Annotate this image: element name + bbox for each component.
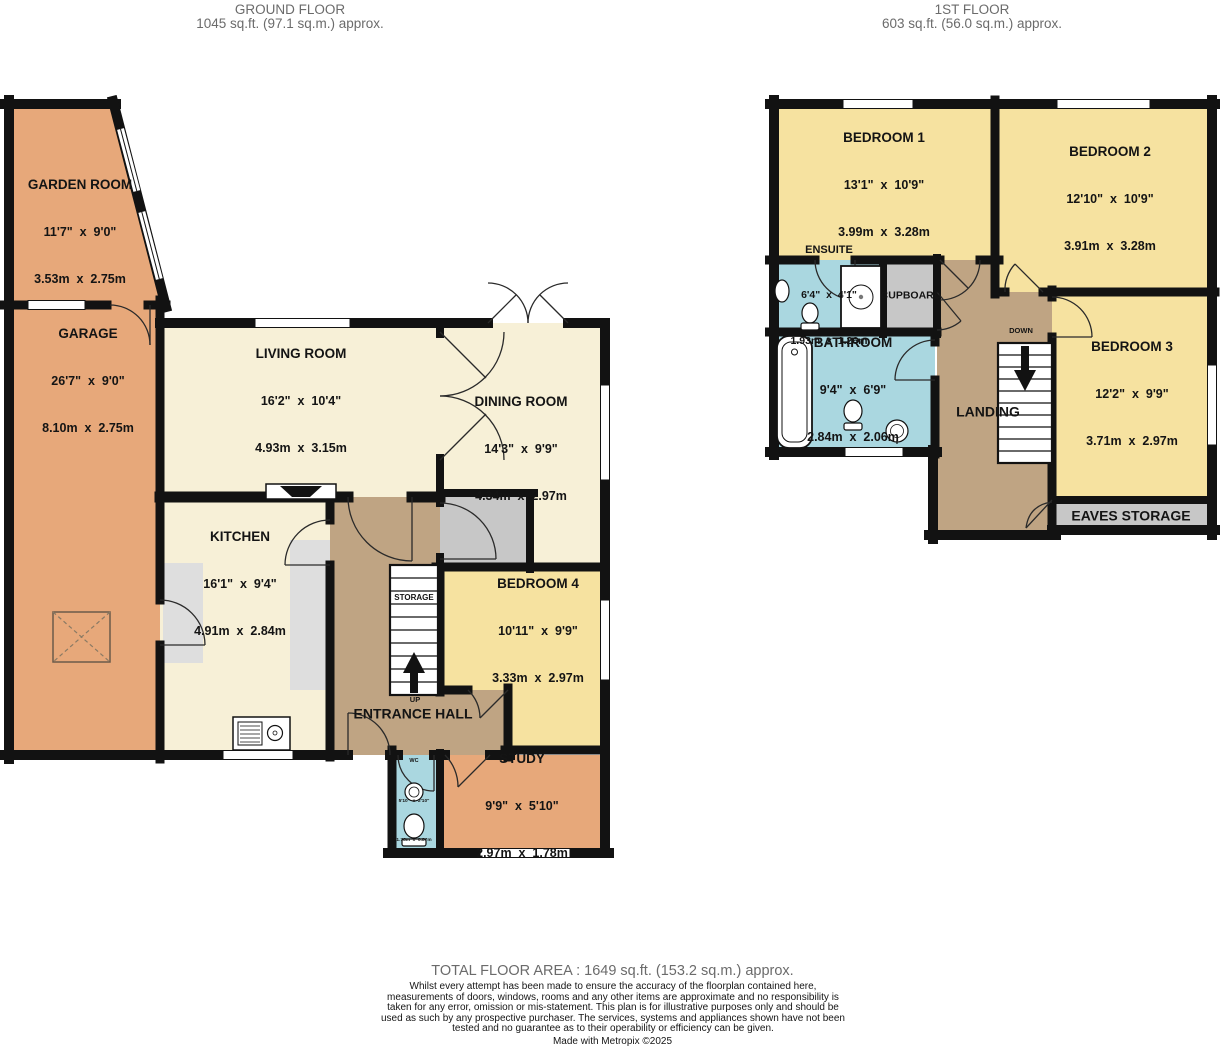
stairs-arrow-shaft: [1021, 346, 1029, 372]
door-leaf: [488, 295, 516, 323]
room-label-entrance-hall: ENTRANCE HALL: [354, 707, 473, 722]
ground-floor-title: GROUND FLOOR: [196, 3, 384, 17]
floorplan-canvas: GROUND FLOOR 1045 sq.ft. (97.1 sq.m.) ap…: [0, 0, 1225, 1048]
stairs-up-label: UP: [410, 696, 420, 704]
first-floor-area: 603 sq.ft. (56.0 sq.m.) approx.: [882, 17, 1062, 31]
disclaimer-text: Whilst every attempt has been made to en…: [378, 982, 848, 1035]
room-label-study: STUDY 9'9" x 5'10" 2.97m x 1.78m: [476, 718, 568, 894]
ground-floor-header: GROUND FLOOR 1045 sq.ft. (97.1 sq.m.) ap…: [196, 3, 384, 31]
stairs-down-label: DOWN: [1009, 327, 1033, 335]
window: [601, 385, 610, 480]
window: [1208, 365, 1217, 445]
stairs-up: [390, 565, 438, 695]
room-label-garage: GARAGE 26'7" x 9'0" 8.10m x 2.75m: [42, 293, 134, 469]
door-leaf: [540, 295, 568, 323]
stairs-arrow-shaft: [410, 671, 418, 693]
room-label-bedroom3: BEDROOM 3 12'2" x 9'9" 3.71m x 2.97m: [1086, 306, 1178, 482]
window: [223, 751, 293, 760]
window: [601, 600, 610, 680]
room-label-wc: WC 5'10" x 2'10" 1.78m x 0.87m: [396, 725, 431, 877]
kitchen-alcove-right: [290, 540, 330, 690]
room-label-living-room: LIVING ROOM 16'2" x 10'4" 4.93m x 3.15m: [255, 313, 347, 489]
total-floor-area: TOTAL FLOOR AREA : 1649 sq.ft. (153.2 sq…: [0, 963, 1225, 979]
room-label-dining-room: DINING ROOM 14'3" x 9'9" 4.34m x 2.97m: [475, 361, 568, 537]
first-floor-header: 1ST FLOOR 603 sq.ft. (56.0 sq.m.) approx…: [882, 3, 1062, 31]
room-label-bedroom4: BEDROOM 4 10'11" x 9'9" 3.33m x 2.97m: [492, 543, 584, 719]
room-label-cupboard: CUPBOARD: [881, 290, 942, 301]
room-label-eaves-storage: EAVES STORAGE: [1071, 509, 1190, 524]
sink-icon: [775, 280, 789, 302]
ground-floor-area: 1045 sq.ft. (97.1 sq.m.) approx.: [196, 17, 384, 31]
room-label-kitchen: KITCHEN 16'1" x 9'4" 4.91m x 2.84m: [194, 496, 286, 672]
first-floor-title: 1ST FLOOR: [882, 3, 1062, 17]
room-label-landing: LANDING: [956, 405, 1020, 420]
window: [1057, 100, 1150, 109]
kitchen-sink-icon: [233, 717, 290, 750]
room-label-bedroom2: BEDROOM 2 12'10" x 10'9" 3.91m x 3.28m: [1064, 111, 1156, 287]
stairs-storage-label: STORAGE: [393, 594, 434, 602]
room-label-bathroom: BATHROOM 9'4" x 6'9" 2.84m x 2.06m: [807, 302, 899, 478]
credit-text: Made with Metropix ©2025: [0, 1036, 1225, 1047]
